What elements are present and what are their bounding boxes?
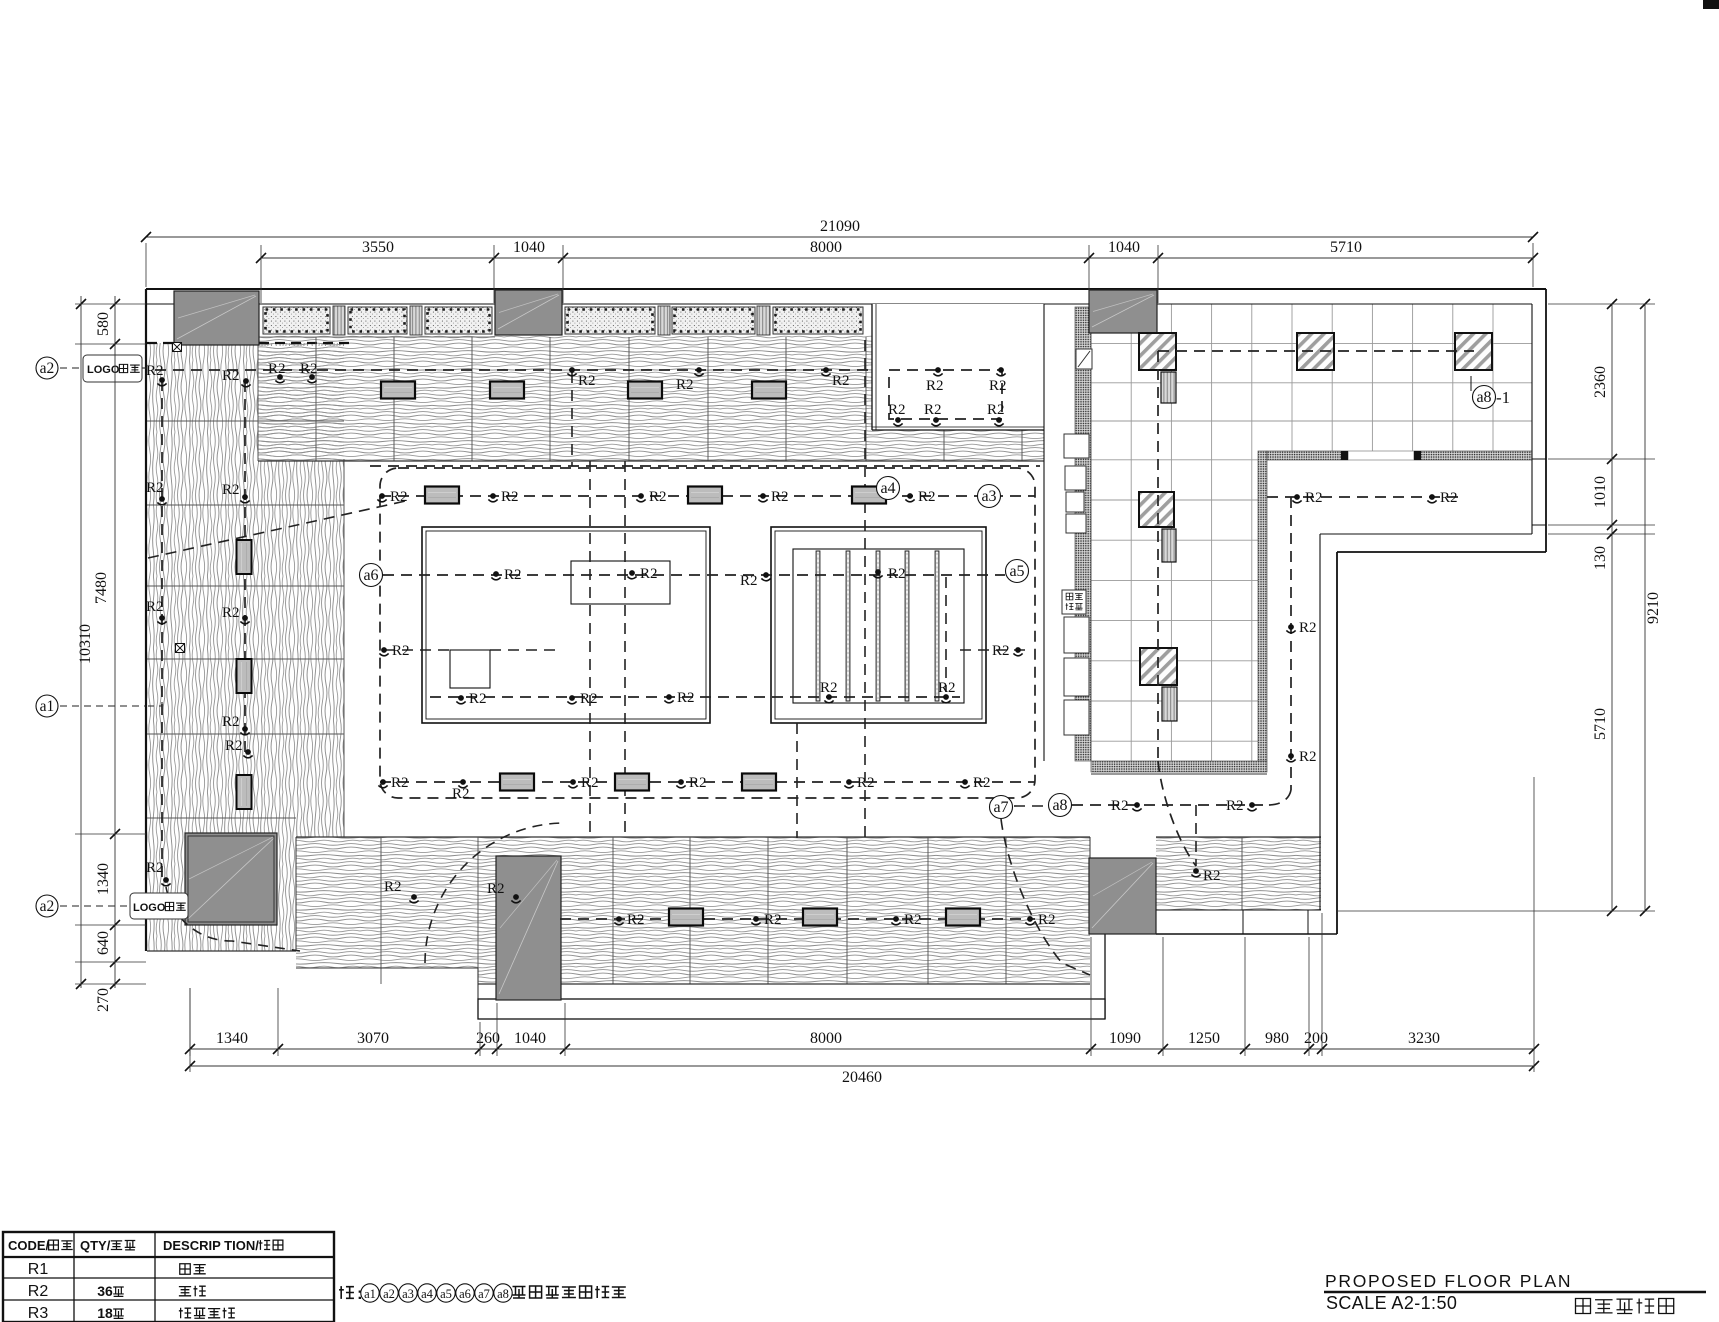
svg-text:R2: R2 [820,680,838,696]
svg-text:R2: R2 [992,643,1010,659]
svg-text:640: 640 [95,931,112,955]
svg-text:a7: a7 [478,1287,490,1301]
svg-text:R2: R2 [832,373,850,389]
svg-text:R2: R2 [501,489,519,505]
svg-text:R2: R2 [857,775,875,791]
svg-text:R2: R2 [578,373,596,389]
svg-text:R2: R2 [764,912,782,928]
svg-text:5710: 5710 [1330,239,1362,256]
svg-text:1340: 1340 [216,1030,248,1047]
svg-text:a3: a3 [981,488,996,505]
svg-text:R2: R2 [487,881,505,897]
svg-text:a4: a4 [880,480,895,497]
svg-text:R2: R2 [580,691,598,707]
svg-text:R2: R2 [581,775,599,791]
svg-text:DESCRIP TION/: DESCRIP TION/ [163,1238,259,1253]
svg-text:R2: R2 [1299,620,1317,636]
svg-text:R2: R2 [222,714,240,730]
svg-text:3550: 3550 [362,239,394,256]
svg-text:R2: R2 [973,775,991,791]
svg-text:8000: 8000 [810,1030,842,1047]
svg-text:a2: a2 [40,360,55,377]
svg-text:R1: R1 [28,1261,49,1278]
svg-text:18: 18 [97,1305,113,1321]
svg-text:3230: 3230 [1408,1030,1440,1047]
svg-text:PROPOSED FLOOR PLAN: PROPOSED FLOOR PLAN [1325,1271,1572,1291]
svg-text:R2: R2 [225,738,243,754]
svg-text:R2: R2 [390,489,408,505]
svg-text:R2: R2 [1038,912,1056,928]
svg-text:R2: R2 [392,643,410,659]
svg-text:R2: R2 [391,775,409,791]
svg-text:R2: R2 [1203,868,1221,884]
svg-text:a8: a8 [497,1287,509,1301]
svg-text:R3: R3 [28,1305,49,1322]
svg-text:R2: R2 [989,378,1007,394]
svg-text:a6: a6 [363,567,378,584]
svg-text:1010: 1010 [1592,476,1609,508]
svg-text:2360: 2360 [1592,366,1609,398]
svg-text:3070: 3070 [357,1030,389,1047]
svg-text:8000: 8000 [810,239,842,256]
svg-text:a1: a1 [364,1287,376,1301]
svg-text:R2: R2 [1111,798,1129,814]
svg-text:R2: R2 [222,368,240,384]
svg-text:200: 200 [1304,1030,1328,1047]
svg-text:a5: a5 [440,1287,452,1301]
svg-text:a4: a4 [421,1287,434,1301]
svg-text:LOGO: LOGO [133,902,166,914]
svg-text:R2: R2 [649,489,667,505]
svg-text:R2: R2 [146,363,164,379]
svg-text:R2: R2 [1305,490,1323,506]
svg-text:R2: R2 [268,361,286,377]
svg-text:1340: 1340 [95,863,112,895]
svg-text:a8: a8 [1476,389,1491,406]
svg-text:a6: a6 [459,1287,471,1301]
svg-text:R2: R2 [28,1283,49,1300]
svg-text:R2: R2 [987,402,1005,418]
svg-text:R2: R2 [1226,798,1244,814]
svg-text:R2: R2 [300,361,318,377]
svg-text:R2: R2 [384,879,402,895]
svg-text:580: 580 [95,312,112,336]
svg-text:CODE/: CODE/ [8,1238,50,1253]
svg-text:a2: a2 [40,898,55,915]
svg-text:a3: a3 [402,1287,414,1301]
svg-text:R2: R2 [676,377,694,393]
svg-text:1040: 1040 [513,239,545,256]
svg-text:R2: R2 [904,912,922,928]
svg-text:R2: R2 [222,482,240,498]
svg-text:R2: R2 [888,402,906,418]
svg-text:SCALE A2-1:50: SCALE A2-1:50 [1326,1293,1457,1313]
svg-text:10310: 10310 [77,624,94,664]
svg-text:QTY/: QTY/ [80,1238,111,1253]
svg-text:9210: 9210 [1645,592,1662,624]
svg-text:R2: R2 [677,690,695,706]
svg-text:36: 36 [97,1283,113,1299]
svg-text:a7: a7 [993,799,1008,816]
svg-text:R2: R2 [689,775,707,791]
svg-text:R2: R2 [146,480,164,496]
svg-text:270: 270 [95,988,112,1012]
svg-text:R2: R2 [469,691,487,707]
svg-text:1250: 1250 [1188,1030,1220,1047]
svg-text:R2: R2 [924,402,942,418]
svg-text:R2: R2 [452,786,470,802]
svg-text:a2: a2 [383,1287,395,1301]
svg-text:R2: R2 [146,599,164,615]
svg-text:a5: a5 [1009,563,1024,580]
svg-text:1040: 1040 [514,1030,546,1047]
svg-text:R2: R2 [771,489,789,505]
svg-text:R2: R2 [938,680,956,696]
svg-text:a8: a8 [1052,797,1067,814]
svg-text:1090: 1090 [1109,1030,1141,1047]
svg-text:R2: R2 [146,860,164,876]
svg-text:20460: 20460 [842,1069,882,1086]
svg-text:R2: R2 [504,567,522,583]
svg-text:21090: 21090 [820,218,860,235]
svg-text:R2: R2 [918,489,936,505]
svg-text:R2: R2 [640,566,658,582]
svg-text:R2: R2 [1299,749,1317,765]
svg-text:R2: R2 [888,566,906,582]
svg-text:7480: 7480 [93,572,110,604]
svg-text:R2: R2 [627,912,645,928]
svg-text:980: 980 [1265,1030,1289,1047]
svg-text:R2: R2 [926,378,944,394]
svg-text:a1: a1 [40,698,55,715]
svg-text:130: 130 [1592,546,1609,570]
svg-text:-1: -1 [1496,388,1510,407]
svg-text:5710: 5710 [1592,708,1609,740]
svg-text:1040: 1040 [1108,239,1140,256]
svg-text:R2: R2 [740,573,758,589]
svg-text:R2: R2 [222,605,240,621]
svg-text:R2: R2 [1440,490,1458,506]
